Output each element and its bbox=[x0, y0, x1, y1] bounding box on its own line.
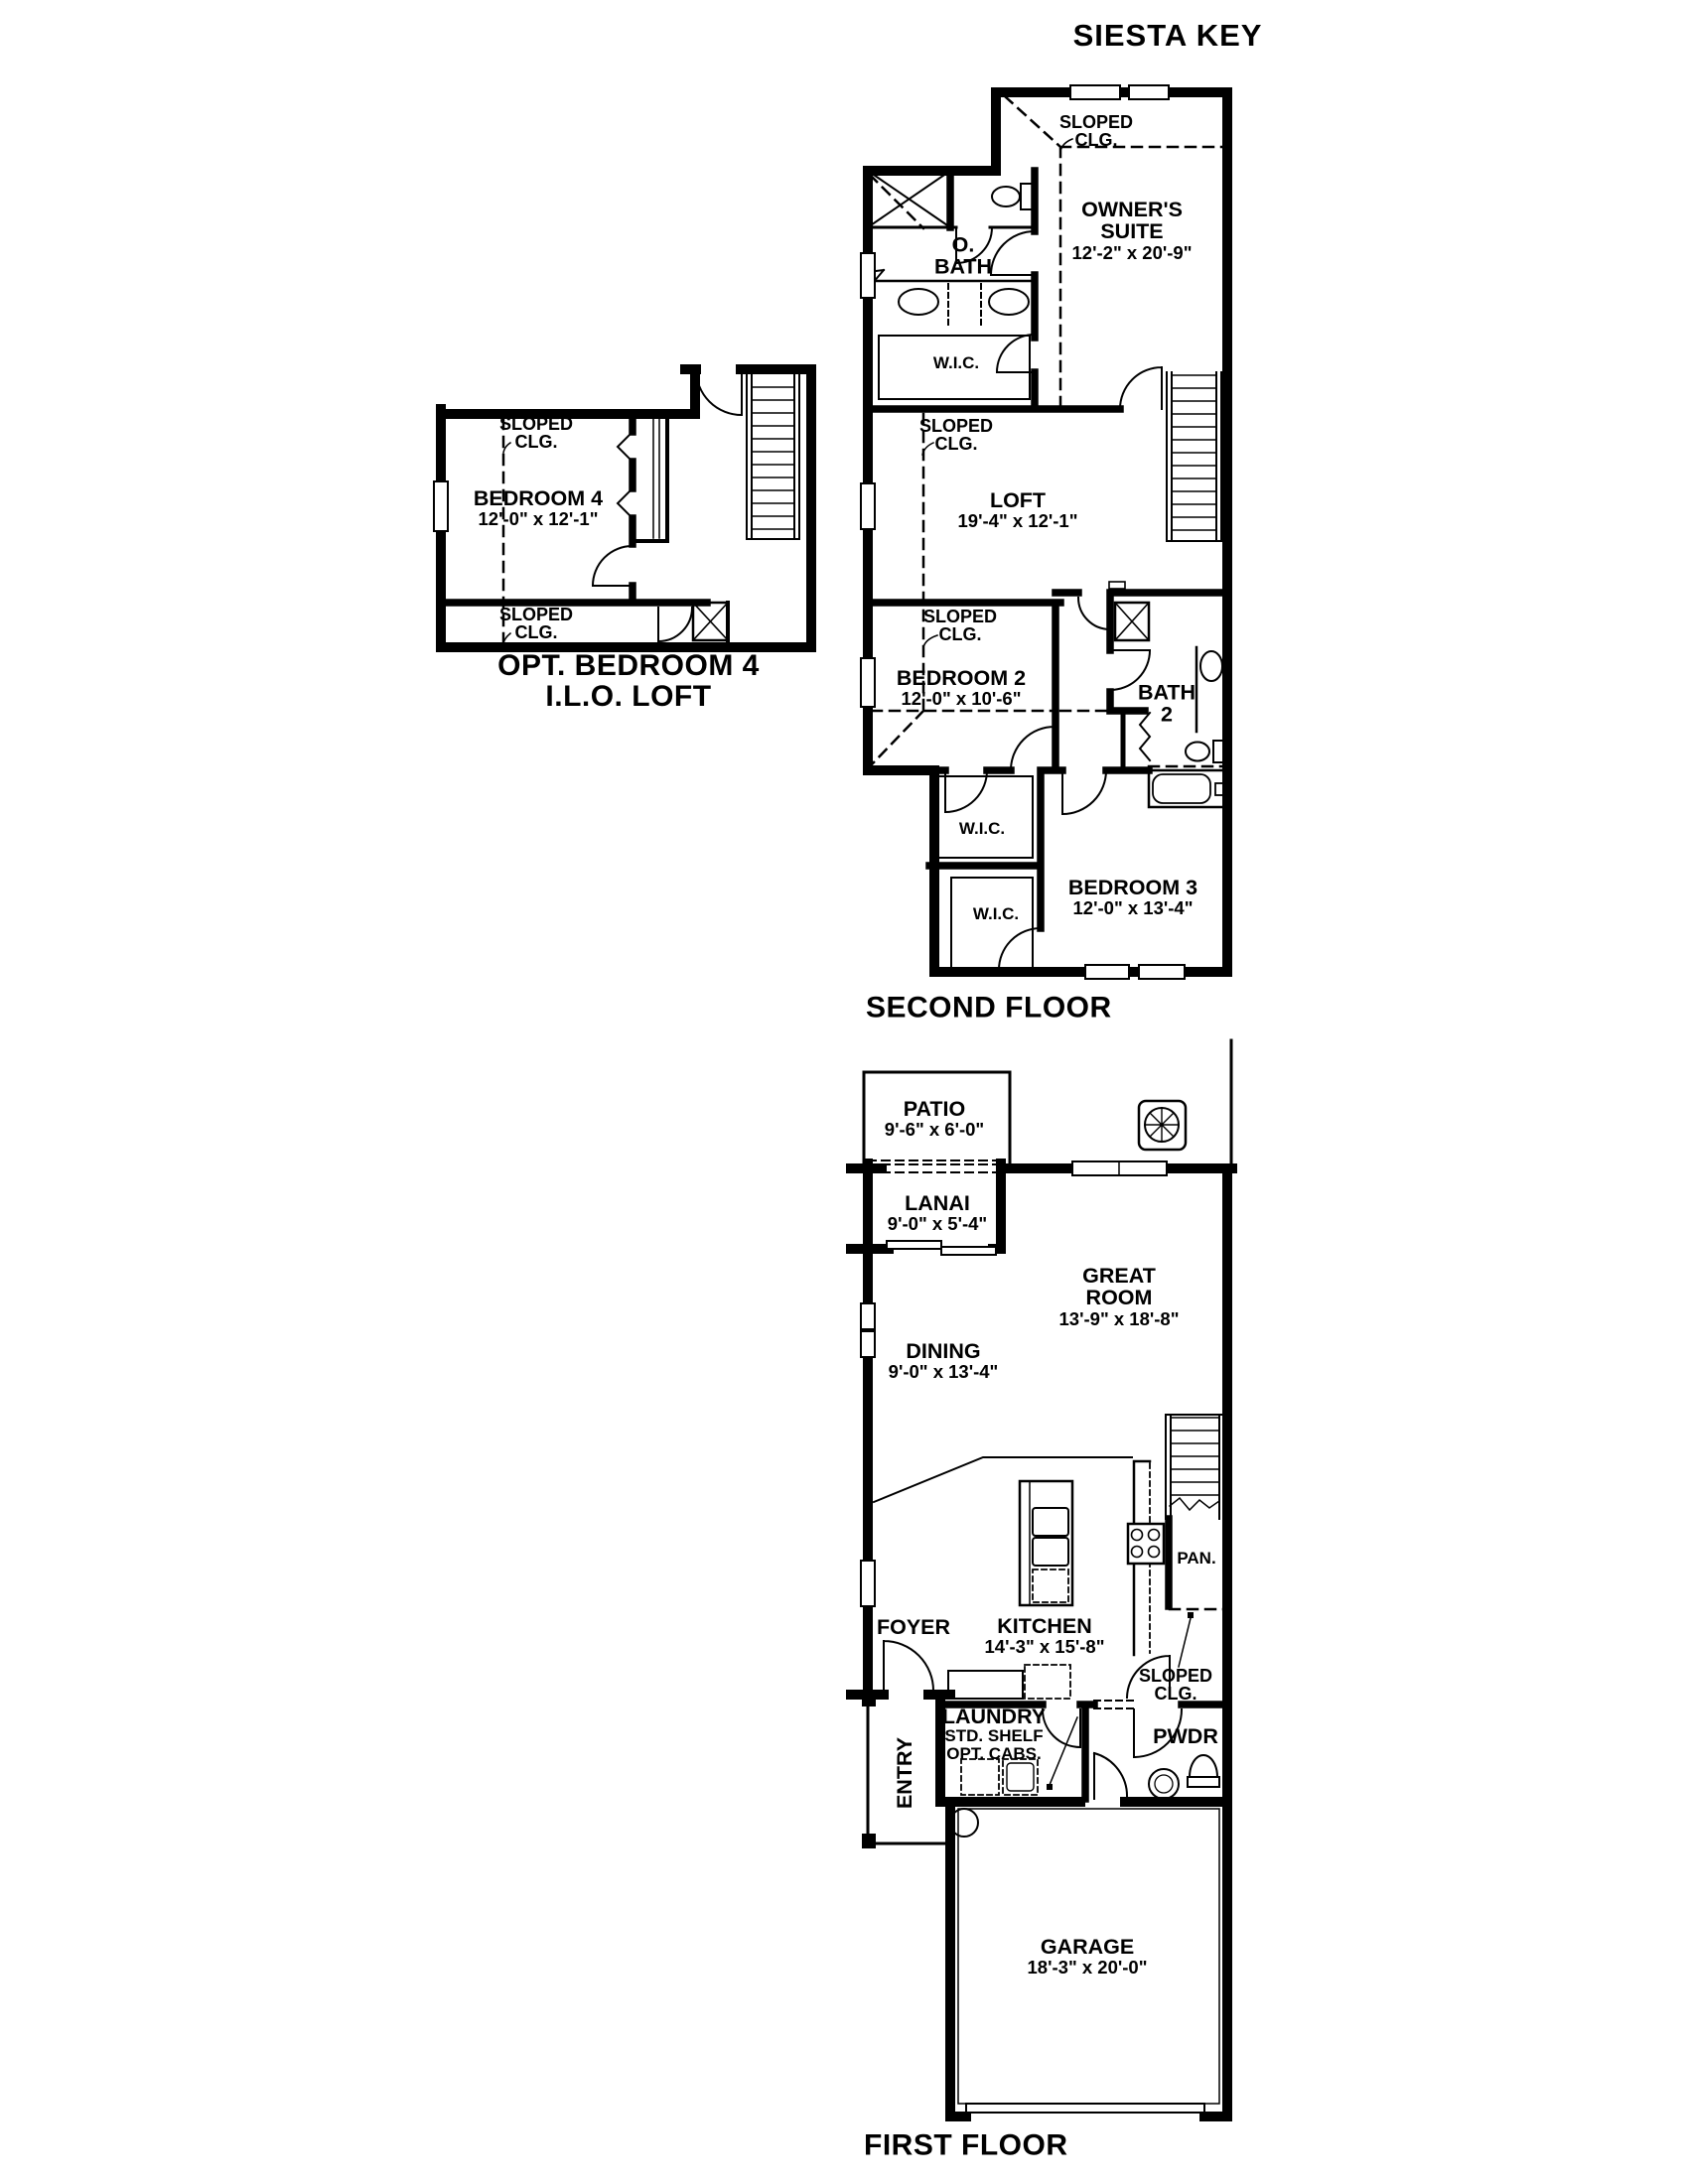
dining-label: DINING 9'-0" x 13'-4" bbox=[889, 1340, 999, 1382]
laundry-label: LAUNDRY STD. SHELF OPT. CABS. bbox=[942, 1706, 1046, 1763]
bedroom3-label: BEDROOM 3 12'-0" x 13'-4" bbox=[1068, 877, 1197, 918]
floorplan-sheet: SIESTA KEY SLOPED CLG. OWNER'S SUITE 12'… bbox=[0, 0, 1688, 2184]
garage-label: GARAGE 18'-3" x 20'-0" bbox=[1028, 1936, 1148, 1978]
pantry-label: PAN. bbox=[1177, 1550, 1215, 1568]
bedroom2-label: BEDROOM 2 12'-0" x 10'-6" bbox=[897, 667, 1026, 709]
owners-wic-label: W.I.C. bbox=[933, 354, 979, 372]
patio-label: PATIO 9'-6" x 6'-0" bbox=[885, 1098, 984, 1140]
bedroom2-wic-label: W.I.C. bbox=[959, 820, 1005, 838]
owners-bath-label: O. BATH bbox=[934, 234, 992, 279]
second-floor-caption: SECOND FLOOR bbox=[866, 992, 1112, 1023]
sloped-clg-note-owners: SLOPED CLG. bbox=[1059, 113, 1133, 149]
kitchen-label: KITCHEN 14'-3" x 15'-8" bbox=[985, 1615, 1105, 1657]
sloped-clg-note-bedroom4-bottom: SLOPED CLG. bbox=[499, 606, 573, 641]
sloped-clg-note-bedroom2: SLOPED CLG. bbox=[923, 608, 997, 643]
sloped-clg-note-loft: SLOPED CLG. bbox=[919, 417, 993, 453]
sloped-clg-note-bedroom4-top: SLOPED CLG. bbox=[499, 415, 573, 451]
sloped-clg-note-kitchen: SLOPED CLG. bbox=[1139, 1667, 1212, 1703]
entry-label: ENTRY bbox=[894, 1737, 915, 1809]
foyer-label: FOYER bbox=[877, 1616, 950, 1638]
plan-title: SIESTA KEY bbox=[1073, 20, 1263, 52]
loft-label: LOFT 19'-4" x 12'-1" bbox=[958, 489, 1078, 531]
powder-label: PWDR bbox=[1153, 1725, 1218, 1747]
bath2-label: BATH 2 bbox=[1138, 682, 1196, 727]
floorplan-linework bbox=[0, 0, 1688, 2184]
owners-suite-label: OWNER'S SUITE 12'-2" x 20'-9" bbox=[1072, 199, 1193, 262]
bedroom3-wic-label: W.I.C. bbox=[973, 905, 1019, 923]
lanai-label: LANAI 9'-0" x 5'-4" bbox=[888, 1192, 987, 1234]
opt-bedroom4-caption: OPT. BEDROOM 4 I.L.O. LOFT bbox=[497, 650, 760, 712]
first-floor-caption: FIRST FLOOR bbox=[864, 2129, 1067, 2160]
bedroom4-label: BEDROOM 4 12'-0" x 12'-1" bbox=[474, 487, 603, 529]
great-room-label: GREAT ROOM 13'-9" x 18'-8" bbox=[1059, 1265, 1180, 1328]
